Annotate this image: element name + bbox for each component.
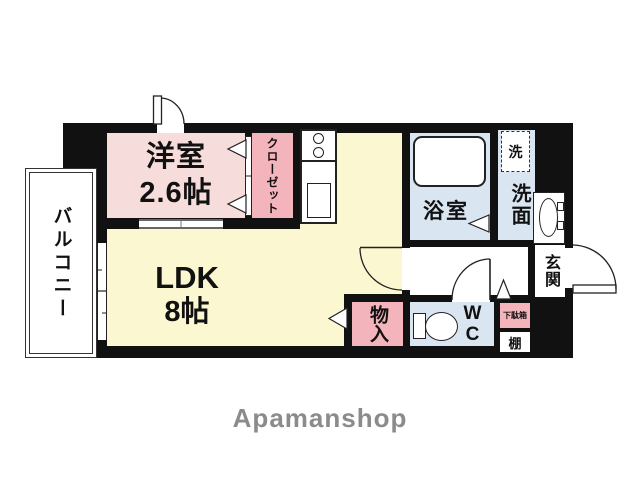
washroom-room: 洗 洗面 [498, 130, 535, 240]
bedroom-name: 洋室 [139, 140, 212, 175]
balcony-room: バルコニー [25, 168, 97, 358]
apamanshop-logo: Apamanshop [0, 398, 640, 438]
balcony-window [97, 243, 107, 340]
balcony-railing-line [29, 172, 93, 354]
closet-room: クローゼット [252, 133, 293, 218]
kitchen-sink [307, 183, 331, 218]
wash-basin-icon [539, 198, 558, 237]
shoe-cabinet: 下駄箱 [500, 303, 530, 328]
bathroom-room: 浴室 [410, 133, 490, 240]
vanity-fixture [557, 221, 564, 230]
bedroom-size: 2.6帖 [139, 176, 212, 211]
stove-burner-icon [313, 147, 324, 158]
top-door-arc [161, 98, 184, 124]
storage-room: 物入 [352, 302, 403, 346]
storage-label: 物入 [352, 302, 403, 346]
top-doorway-gap [157, 123, 184, 133]
bedroom-sliding-door [139, 219, 223, 229]
stove-burner-icon [313, 133, 324, 144]
ldk-size: 8帖 [155, 296, 219, 328]
floorplan-canvas: LDK 8帖 洋室 2.6帖 クローゼット 物入 浴室 洗 [0, 0, 640, 480]
washing-machine-icon: 洗 [501, 131, 530, 172]
front-door-arc [573, 245, 616, 289]
wc-doorway-gap [452, 295, 490, 302]
vanity-unit [533, 192, 565, 244]
bathtub-icon [413, 136, 486, 187]
ldk-label: LDK 8帖 [112, 250, 262, 340]
shelf-label: 棚 [500, 332, 530, 352]
ldk-name: LDK [155, 261, 219, 296]
entrance-room: 玄関 [535, 245, 565, 297]
vanity-fixture [557, 202, 564, 211]
closet-label: クローゼット [252, 133, 293, 218]
washroom-label: 洗面 [505, 183, 534, 227]
bedroom-room: 洋室 2.6帖 [107, 133, 245, 218]
front-door-leaf [573, 285, 616, 293]
top-door-leaf [154, 96, 162, 124]
bathroom-label: 浴室 [410, 195, 482, 225]
front-doorway-gap [565, 248, 573, 288]
closet-door-track [245, 136, 252, 216]
washing-machine-label: 洗 [502, 132, 529, 171]
kitchen-counter [300, 129, 337, 224]
entrance-label: 玄関 [535, 245, 565, 297]
shoe-cabinet-label: 下駄箱 [500, 303, 530, 328]
stove-divider-line [302, 160, 335, 162]
toilet-bowl-icon [425, 312, 458, 341]
shelf: 棚 [500, 332, 530, 352]
ldk-doorway-gap [402, 248, 410, 290]
bedroom-label: 洋室 2.6帖 [107, 133, 245, 218]
wc-room: WC [410, 302, 494, 346]
wc-label: WC [462, 303, 482, 345]
hallway-floor [410, 247, 528, 295]
